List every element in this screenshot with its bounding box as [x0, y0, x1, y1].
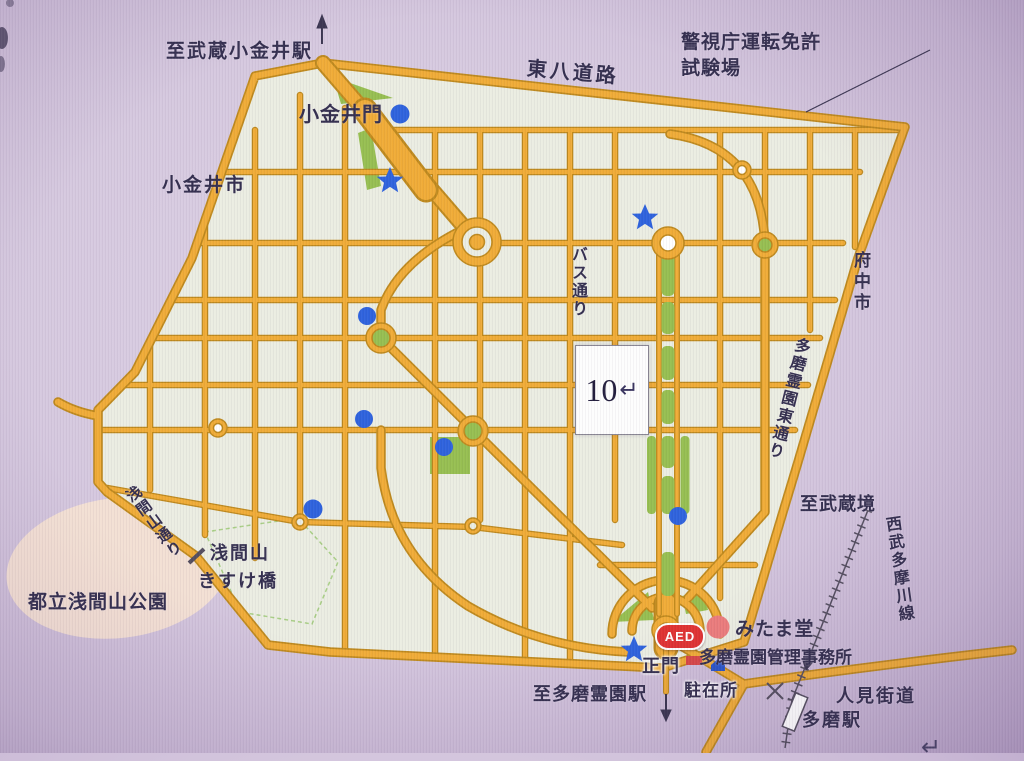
label-to-tama-reien-station: 至多磨霊園駅 [533, 680, 647, 706]
target-roundabout [453, 218, 501, 266]
stray-return-mark-icon: ↵ [921, 733, 941, 761]
page-number-text: 10 [585, 372, 617, 409]
label-sengenyama: 浅間山 [210, 539, 270, 565]
label-koganei-gate: 小金井門 [299, 98, 383, 127]
arrow-up-to-koganei-station [317, 15, 327, 44]
cemetery-map [0, 0, 1024, 753]
label-police-box: 駐在所 [684, 676, 738, 701]
return-mark-icon: ↵ [619, 377, 638, 403]
label-kisuke-bridge: きすけ橋 [198, 567, 278, 593]
blue-dot-marker [355, 410, 373, 428]
label-admin-office: 多磨霊園管理事務所 [699, 643, 852, 668]
label-mitama-hall: みたま堂 [735, 614, 814, 641]
blue-dot-marker [391, 105, 410, 124]
blue-dot-marker [304, 500, 323, 519]
label-hitomi-kaido: 人見街道 [836, 682, 916, 708]
license-center-pointer-line [806, 50, 930, 112]
page-number-textbox[interactable]: 10↵ [575, 345, 649, 435]
label-sengenyama-park: 都立浅間山公園 [28, 587, 168, 614]
label-to-musashisakai: 至武蔵境 [800, 490, 876, 516]
aed-badge: AED [655, 623, 705, 650]
arrow-down-to-tamareien-station [661, 694, 671, 721]
label-license-center-line1: 警視庁運転免許 [681, 27, 821, 54]
blue-dot-marker [435, 438, 453, 456]
screen-smudges [0, 0, 14, 72]
label-license-center-line2: 試験場 [681, 53, 741, 80]
label-main-gate: 正門 [642, 652, 680, 678]
blue-dot-marker [669, 507, 687, 525]
label-koganei-city: 小金井市 [162, 170, 246, 197]
railway-crossing-icon [767, 683, 783, 699]
blue-dot-marker [358, 307, 376, 325]
label-tama-station: 多磨駅 [802, 706, 862, 732]
mitama-hall-marker [707, 616, 730, 639]
label-to-musashi-koganei-station: 至武蔵小金井駅 [166, 36, 313, 63]
label-fuchu-city: 府中市 [848, 251, 873, 314]
label-bus-street: バス通り [565, 246, 589, 318]
